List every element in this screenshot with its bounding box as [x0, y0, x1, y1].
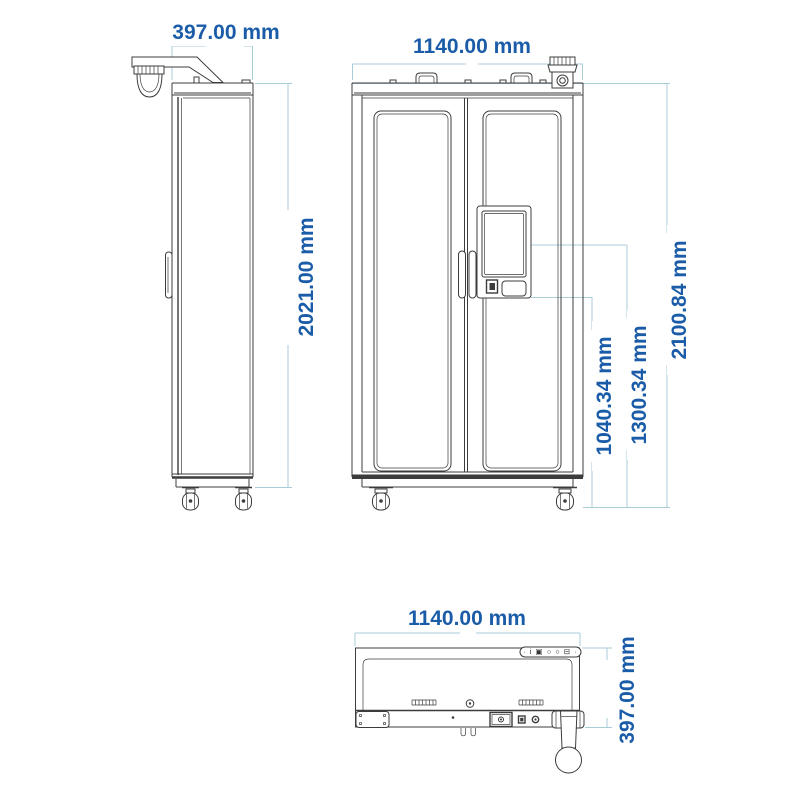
side-door-handle: [166, 252, 173, 298]
cabinet-dimension-drawing: [0, 0, 800, 800]
top-vents: [412, 700, 543, 708]
front-casters: [369, 488, 577, 511]
front-top-fittings: [390, 73, 546, 83]
technical-drawing-canvas: 397.00 mm 2021.00 mm 1140.00 mm 2100.84 …: [0, 0, 800, 800]
side-casters: [182, 488, 252, 511]
side-cabinet-body: [172, 77, 253, 487]
front-height-dimension-label: 2100.84 mm: [667, 225, 693, 375]
front-screen-center-height-dimension-label: 1300.34 mm: [627, 310, 653, 460]
front-cabinet-frame: [352, 83, 583, 477]
front-camera: [548, 57, 577, 88]
front-display-terminal: [477, 206, 531, 298]
front-base: [352, 472, 583, 487]
side-width-dimension-label: 397.00 mm: [156, 20, 296, 46]
top-strip-fittings: [356, 711, 584, 736]
front-width-dimension-label: 1140.00 mm: [402, 34, 542, 60]
side-height-dimension-label: 2021.00 mm: [294, 202, 320, 352]
front-view: [352, 57, 670, 510]
front-terminal-bottom-height-dimension-label: 1040.34 mm: [592, 321, 618, 471]
top-width-dimension-label: 1140.00 mm: [397, 606, 537, 632]
connector-panel-icons: · i ▣ ○ ○ ⊟ ·: [520, 646, 581, 657]
side-dimension-lines: [172, 46, 292, 488]
side-view: [132, 46, 292, 510]
top-depth-dimension-label: 397.00 mm: [615, 615, 641, 765]
side-camera-arm: [132, 57, 223, 97]
